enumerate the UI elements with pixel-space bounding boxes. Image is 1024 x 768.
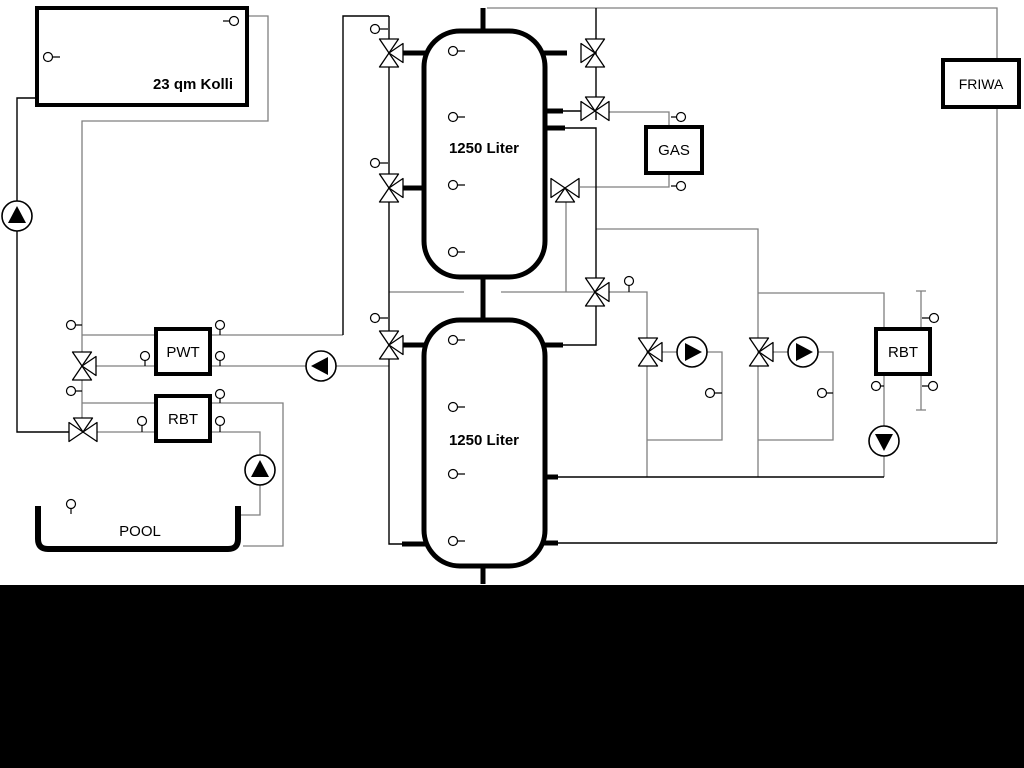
pwt-label: PWT	[166, 344, 199, 361]
valve-tank1-top-left	[380, 39, 404, 67]
sensor-icon	[930, 314, 939, 323]
tank-bottom-label: 1250 Liter	[449, 432, 519, 449]
valve-heating-circuit-2	[750, 338, 774, 366]
pool-pump-icon	[245, 455, 275, 485]
sensor-icon	[67, 387, 76, 396]
gas-label: GAS	[658, 142, 690, 159]
sensor-icon	[138, 417, 147, 426]
valve-heating-circuit-1	[639, 338, 663, 366]
sensor-icon	[677, 182, 686, 191]
sensor-icon	[216, 390, 225, 399]
sensor-icon	[449, 113, 458, 122]
sensor-icon	[371, 25, 380, 34]
sensor-icon	[44, 53, 53, 62]
sensor-icon	[449, 403, 458, 412]
rbt-right-label: RBT	[888, 344, 918, 361]
pwt-pump-icon	[306, 351, 336, 381]
sensor-icon	[872, 382, 881, 391]
sensor-icon	[216, 352, 225, 361]
valve-solar-pool	[69, 418, 97, 442]
sensor-icon	[449, 336, 458, 345]
letterbox-band	[0, 585, 1024, 768]
sensor-icon	[449, 47, 458, 56]
sensor-icon	[677, 113, 686, 122]
sensor-icon	[706, 389, 715, 398]
heating-pump-2-icon	[788, 337, 818, 367]
sensor-icon	[625, 277, 634, 286]
sensor-icon	[371, 314, 380, 323]
sensor-icon	[818, 389, 827, 398]
valve-tank2-top-left	[380, 331, 404, 359]
sensor-icon	[449, 470, 458, 479]
sensor-icon	[929, 382, 938, 391]
rbt-left-label: RBT	[168, 411, 198, 428]
sensor-icon	[216, 417, 225, 426]
valve-gas-supply	[581, 97, 609, 121]
sensor-icon	[449, 181, 458, 190]
sensor-icon	[67, 321, 76, 330]
sensor-icon	[67, 500, 76, 509]
rbt-right-pump-icon	[869, 426, 899, 456]
valve-tank1-mid-left	[380, 174, 404, 202]
sensor-icon	[371, 159, 380, 168]
heating-pump-1-icon	[677, 337, 707, 367]
sensor-icon	[230, 17, 239, 26]
schematic-canvas: 23 qm Kolli 1250 Liter 1250 Liter PWT RB…	[0, 0, 1024, 768]
valve-gas-return	[551, 179, 579, 203]
friwa-label: FRIWA	[959, 76, 1004, 92]
valve-tank1-top-right	[581, 39, 605, 67]
solar-pump-icon	[2, 201, 32, 231]
sensor-icon	[449, 248, 458, 257]
collector-label: 23 qm Kolli	[153, 76, 233, 93]
sensor-icon	[449, 537, 458, 546]
valve-solar-pwt	[73, 352, 97, 380]
sensor-icon	[216, 321, 225, 330]
sensor-icon	[141, 352, 150, 361]
tank-top-label: 1250 Liter	[449, 140, 519, 157]
pool-label: POOL	[119, 523, 161, 540]
